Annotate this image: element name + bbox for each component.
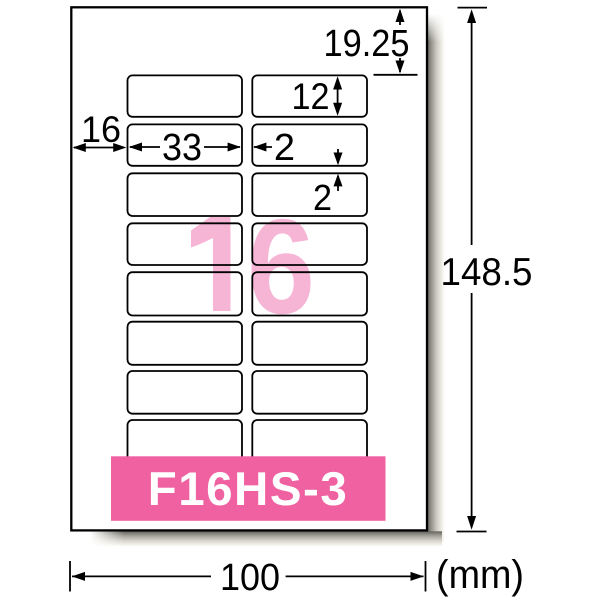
svg-text:33: 33 <box>162 127 202 169</box>
svg-text:148.5: 148.5 <box>441 251 533 294</box>
svg-text:2: 2 <box>313 177 332 218</box>
svg-text:12: 12 <box>292 76 330 117</box>
svg-text:(mm): (mm) <box>436 553 524 597</box>
svg-text:16: 16 <box>81 109 121 150</box>
svg-text:2: 2 <box>274 127 295 169</box>
svg-text:100: 100 <box>220 557 280 599</box>
svg-text:19.25: 19.25 <box>324 23 410 65</box>
svg-text:6: 6 <box>247 191 315 342</box>
svg-text:F16HS-3: F16HS-3 <box>148 463 349 516</box>
